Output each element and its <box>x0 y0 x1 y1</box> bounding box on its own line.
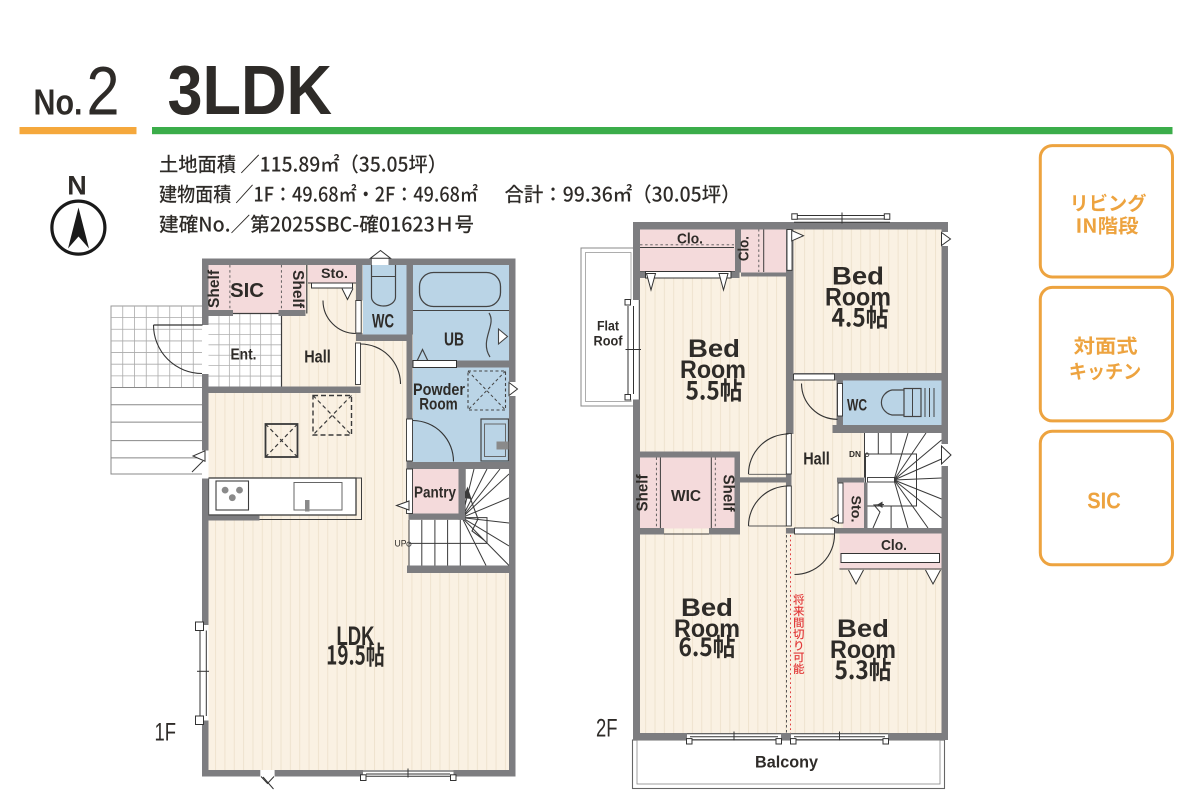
svg-text:WIC: WIC <box>671 488 701 505</box>
svg-text:WC: WC <box>372 312 394 333</box>
svg-text:Hall: Hall <box>803 449 830 469</box>
svg-text:Hall: Hall <box>304 347 331 367</box>
svg-text:Room: Room <box>830 636 896 664</box>
svg-text:Shelf: Shelf <box>206 269 223 308</box>
svg-text:WC: WC <box>847 396 867 415</box>
svg-text:Sto.: Sto. <box>849 496 864 523</box>
svg-text:DN: DN <box>849 449 861 459</box>
svg-text:UP: UP <box>395 539 407 549</box>
svg-text:N: N <box>67 171 87 201</box>
svg-text:Shelf: Shelf <box>289 270 306 309</box>
svg-text:Flat: Flat <box>597 318 619 334</box>
svg-text:Pantry: Pantry <box>414 485 456 502</box>
svg-text:Clo.: Clo. <box>735 236 752 261</box>
svg-text:SIC: SIC <box>230 280 264 302</box>
svg-text:1F: 1F <box>155 719 177 747</box>
svg-text:Clo.: Clo. <box>881 537 907 554</box>
svg-text:3LDK: 3LDK <box>168 51 333 129</box>
svg-text:Shelf: Shelf <box>720 475 737 513</box>
svg-text:2F: 2F <box>596 715 618 743</box>
svg-text:Room: Room <box>419 395 458 414</box>
svg-text:2: 2 <box>87 53 120 130</box>
svg-text:Balcony: Balcony <box>755 753 819 772</box>
svg-text:No.: No. <box>34 82 83 123</box>
svg-text:Roof: Roof <box>594 333 623 349</box>
svg-text:SIC: SIC <box>1087 488 1121 514</box>
svg-text:UB: UB <box>444 330 464 350</box>
svg-text:Sto.: Sto. <box>321 266 348 281</box>
svg-text:Ent.: Ent. <box>231 347 257 364</box>
svg-text:Shelf: Shelf <box>635 474 652 512</box>
svg-text:Clo.: Clo. <box>677 231 703 248</box>
